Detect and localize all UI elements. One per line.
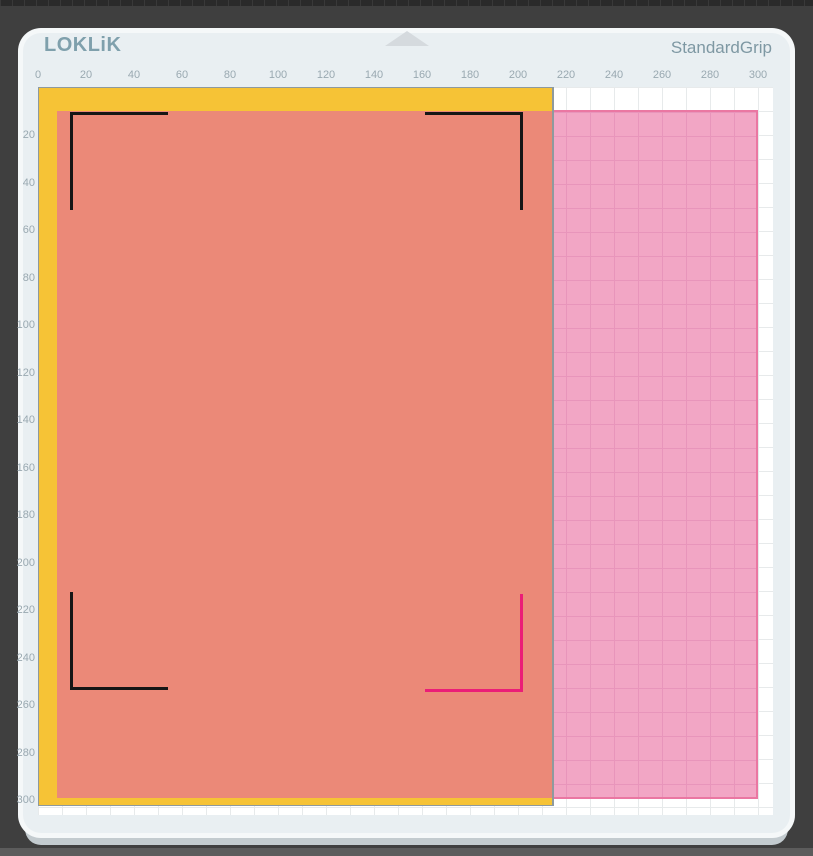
ruler-label: 20 — [80, 69, 92, 81]
ruler-label: 300 — [749, 69, 767, 81]
print-then-cut-image[interactable] — [57, 111, 552, 798]
ruler-label: 40 — [11, 177, 35, 189]
ruler-label: 220 — [557, 69, 575, 81]
ruler-label: 200 — [11, 557, 35, 569]
ruler-label: 260 — [653, 69, 671, 81]
registration-mark-top-right — [425, 112, 523, 210]
ruler-label: 140 — [365, 69, 383, 81]
window-bottom-edge — [0, 848, 813, 856]
ruler-label: 120 — [11, 367, 35, 379]
ruler-label: 280 — [11, 747, 35, 759]
ruler-label: 160 — [11, 462, 35, 474]
window-top-edge — [0, 0, 813, 6]
ruler-label: 200 — [509, 69, 527, 81]
brand-logo: LOKLiK — [44, 34, 121, 57]
mat-alignment-notch-icon — [385, 31, 429, 46]
ruler-label: 280 — [701, 69, 719, 81]
ruler-label: 300 — [11, 794, 35, 806]
canvas-background: LOKLiK StandardGrip 02040608010012014016… — [0, 0, 813, 856]
ruler-label: 120 — [317, 69, 335, 81]
ruler-label: 60 — [11, 224, 35, 236]
ruler-label: 0 — [35, 69, 41, 81]
ruler-label: 140 — [11, 414, 35, 426]
ruler-label: 80 — [11, 272, 35, 284]
registration-mark-bottom-right — [425, 594, 523, 692]
ruler-label: 180 — [461, 69, 479, 81]
ruler-label: 100 — [11, 319, 35, 331]
ruler-label: 80 — [224, 69, 236, 81]
ruler-label: 180 — [11, 509, 35, 521]
mat-type-label: StandardGrip — [671, 38, 772, 58]
ruler-label: 40 — [128, 69, 140, 81]
registration-mark-top-left — [70, 112, 168, 210]
ruler-label: 100 — [269, 69, 287, 81]
ruler-label: 60 — [176, 69, 188, 81]
ruler-label: 260 — [11, 699, 35, 711]
ruler-label: 20 — [11, 129, 35, 141]
cutting-mat[interactable]: LOKLiK StandardGrip 02040608010012014016… — [23, 33, 790, 833]
registration-mark-bottom-left — [70, 592, 168, 690]
ruler-label: 240 — [605, 69, 623, 81]
ruler-label: 240 — [11, 652, 35, 664]
ruler-label: 220 — [11, 604, 35, 616]
ruler-label: 160 — [413, 69, 431, 81]
